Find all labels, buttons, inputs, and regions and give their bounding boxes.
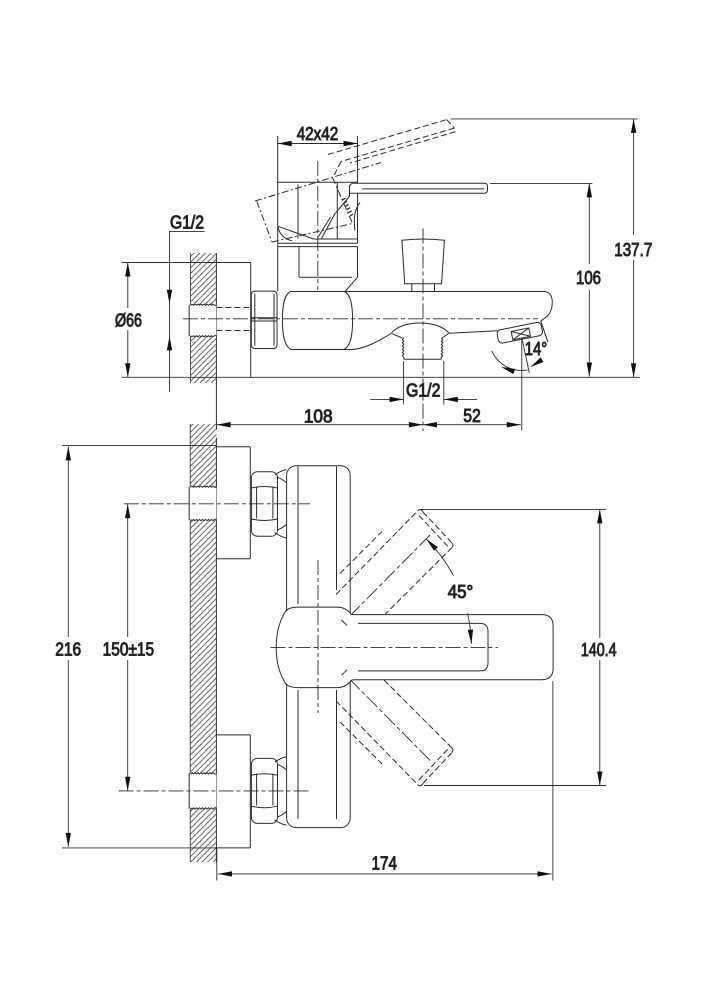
svg-text:52: 52 — [463, 405, 481, 426]
svg-text:108: 108 — [304, 405, 333, 426]
svg-text:Ø66: Ø66 — [115, 310, 142, 331]
svg-text:140.4: 140.4 — [581, 639, 617, 660]
svg-text:150±15: 150±15 — [103, 639, 155, 660]
svg-text:174: 174 — [372, 852, 398, 873]
svg-text:216: 216 — [55, 639, 81, 660]
svg-text:42x42: 42x42 — [297, 123, 339, 144]
svg-text:45°: 45° — [448, 581, 474, 602]
svg-text:G1/2: G1/2 — [170, 211, 204, 232]
svg-text:137.7: 137.7 — [614, 239, 652, 260]
svg-text:106: 106 — [576, 267, 601, 288]
svg-text:14°: 14° — [525, 338, 548, 359]
svg-text:G1/2: G1/2 — [406, 379, 441, 400]
